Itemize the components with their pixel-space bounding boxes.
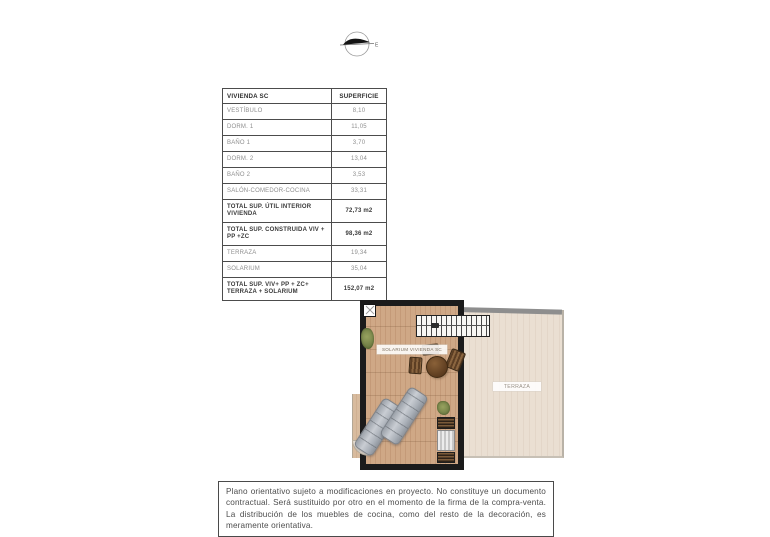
terrace-parapet	[456, 307, 562, 315]
table-row: SALÓN-COMEDOR-COCINA33,31	[223, 184, 387, 200]
plan-sheet: { "compass": { "direction_label": "E" },…	[0, 0, 770, 535]
compass-icon: E	[337, 27, 381, 63]
table-row: TERRAZA19,34	[223, 246, 387, 262]
table-row-total: TOTAL SUP. ÚTIL INTERIOR VIVIENDA72,73 m…	[223, 200, 387, 223]
bbq-counter	[437, 452, 455, 463]
table-row: SOLARIUM35,04	[223, 262, 387, 278]
table-row: VESTÍBULO8,10	[223, 104, 387, 120]
terrace-label: TERRAZA	[493, 382, 541, 391]
table-header-row: VIVIENDA SC SUPERFICIE	[223, 89, 387, 104]
stairs-rail	[417, 325, 489, 326]
stairs-marker	[431, 323, 439, 328]
table-row: BAÑO 23,53	[223, 168, 387, 184]
surface-table: VIVIENDA SC SUPERFICIE VESTÍBULO8,10 DOR…	[222, 88, 387, 301]
table-row: DORM. 213,04	[223, 152, 387, 168]
plant-icon	[437, 401, 450, 415]
bbq-grill	[437, 430, 455, 451]
disclaimer-text: Plano orientativo sujeto a modificacione…	[226, 486, 546, 532]
staircase	[416, 315, 490, 337]
bbq-counter	[437, 417, 455, 429]
skylight-icon	[363, 304, 376, 317]
plant-icon	[361, 328, 374, 349]
table-header-vivienda: VIVIENDA SC	[223, 89, 332, 104]
table-row: BAÑO 13,70	[223, 136, 387, 152]
table-header-superficie: SUPERFICIE	[332, 89, 387, 104]
round-table	[426, 356, 448, 378]
patio-chair	[408, 357, 422, 375]
floorplan: SOLARIUM VIVIENDA SC TERRAZA	[360, 294, 562, 474]
table-row: DORM. 111,05	[223, 120, 387, 136]
table-row-total: TOTAL SUP. CONSTRUIDA VIV + PP +ZC98,36 …	[223, 223, 387, 246]
solarium-label: SOLARIUM VIVIENDA SC	[377, 345, 447, 354]
disclaimer-box: Plano orientativo sujeto a modificacione…	[218, 481, 554, 537]
compass-direction-label: E	[375, 43, 379, 49]
